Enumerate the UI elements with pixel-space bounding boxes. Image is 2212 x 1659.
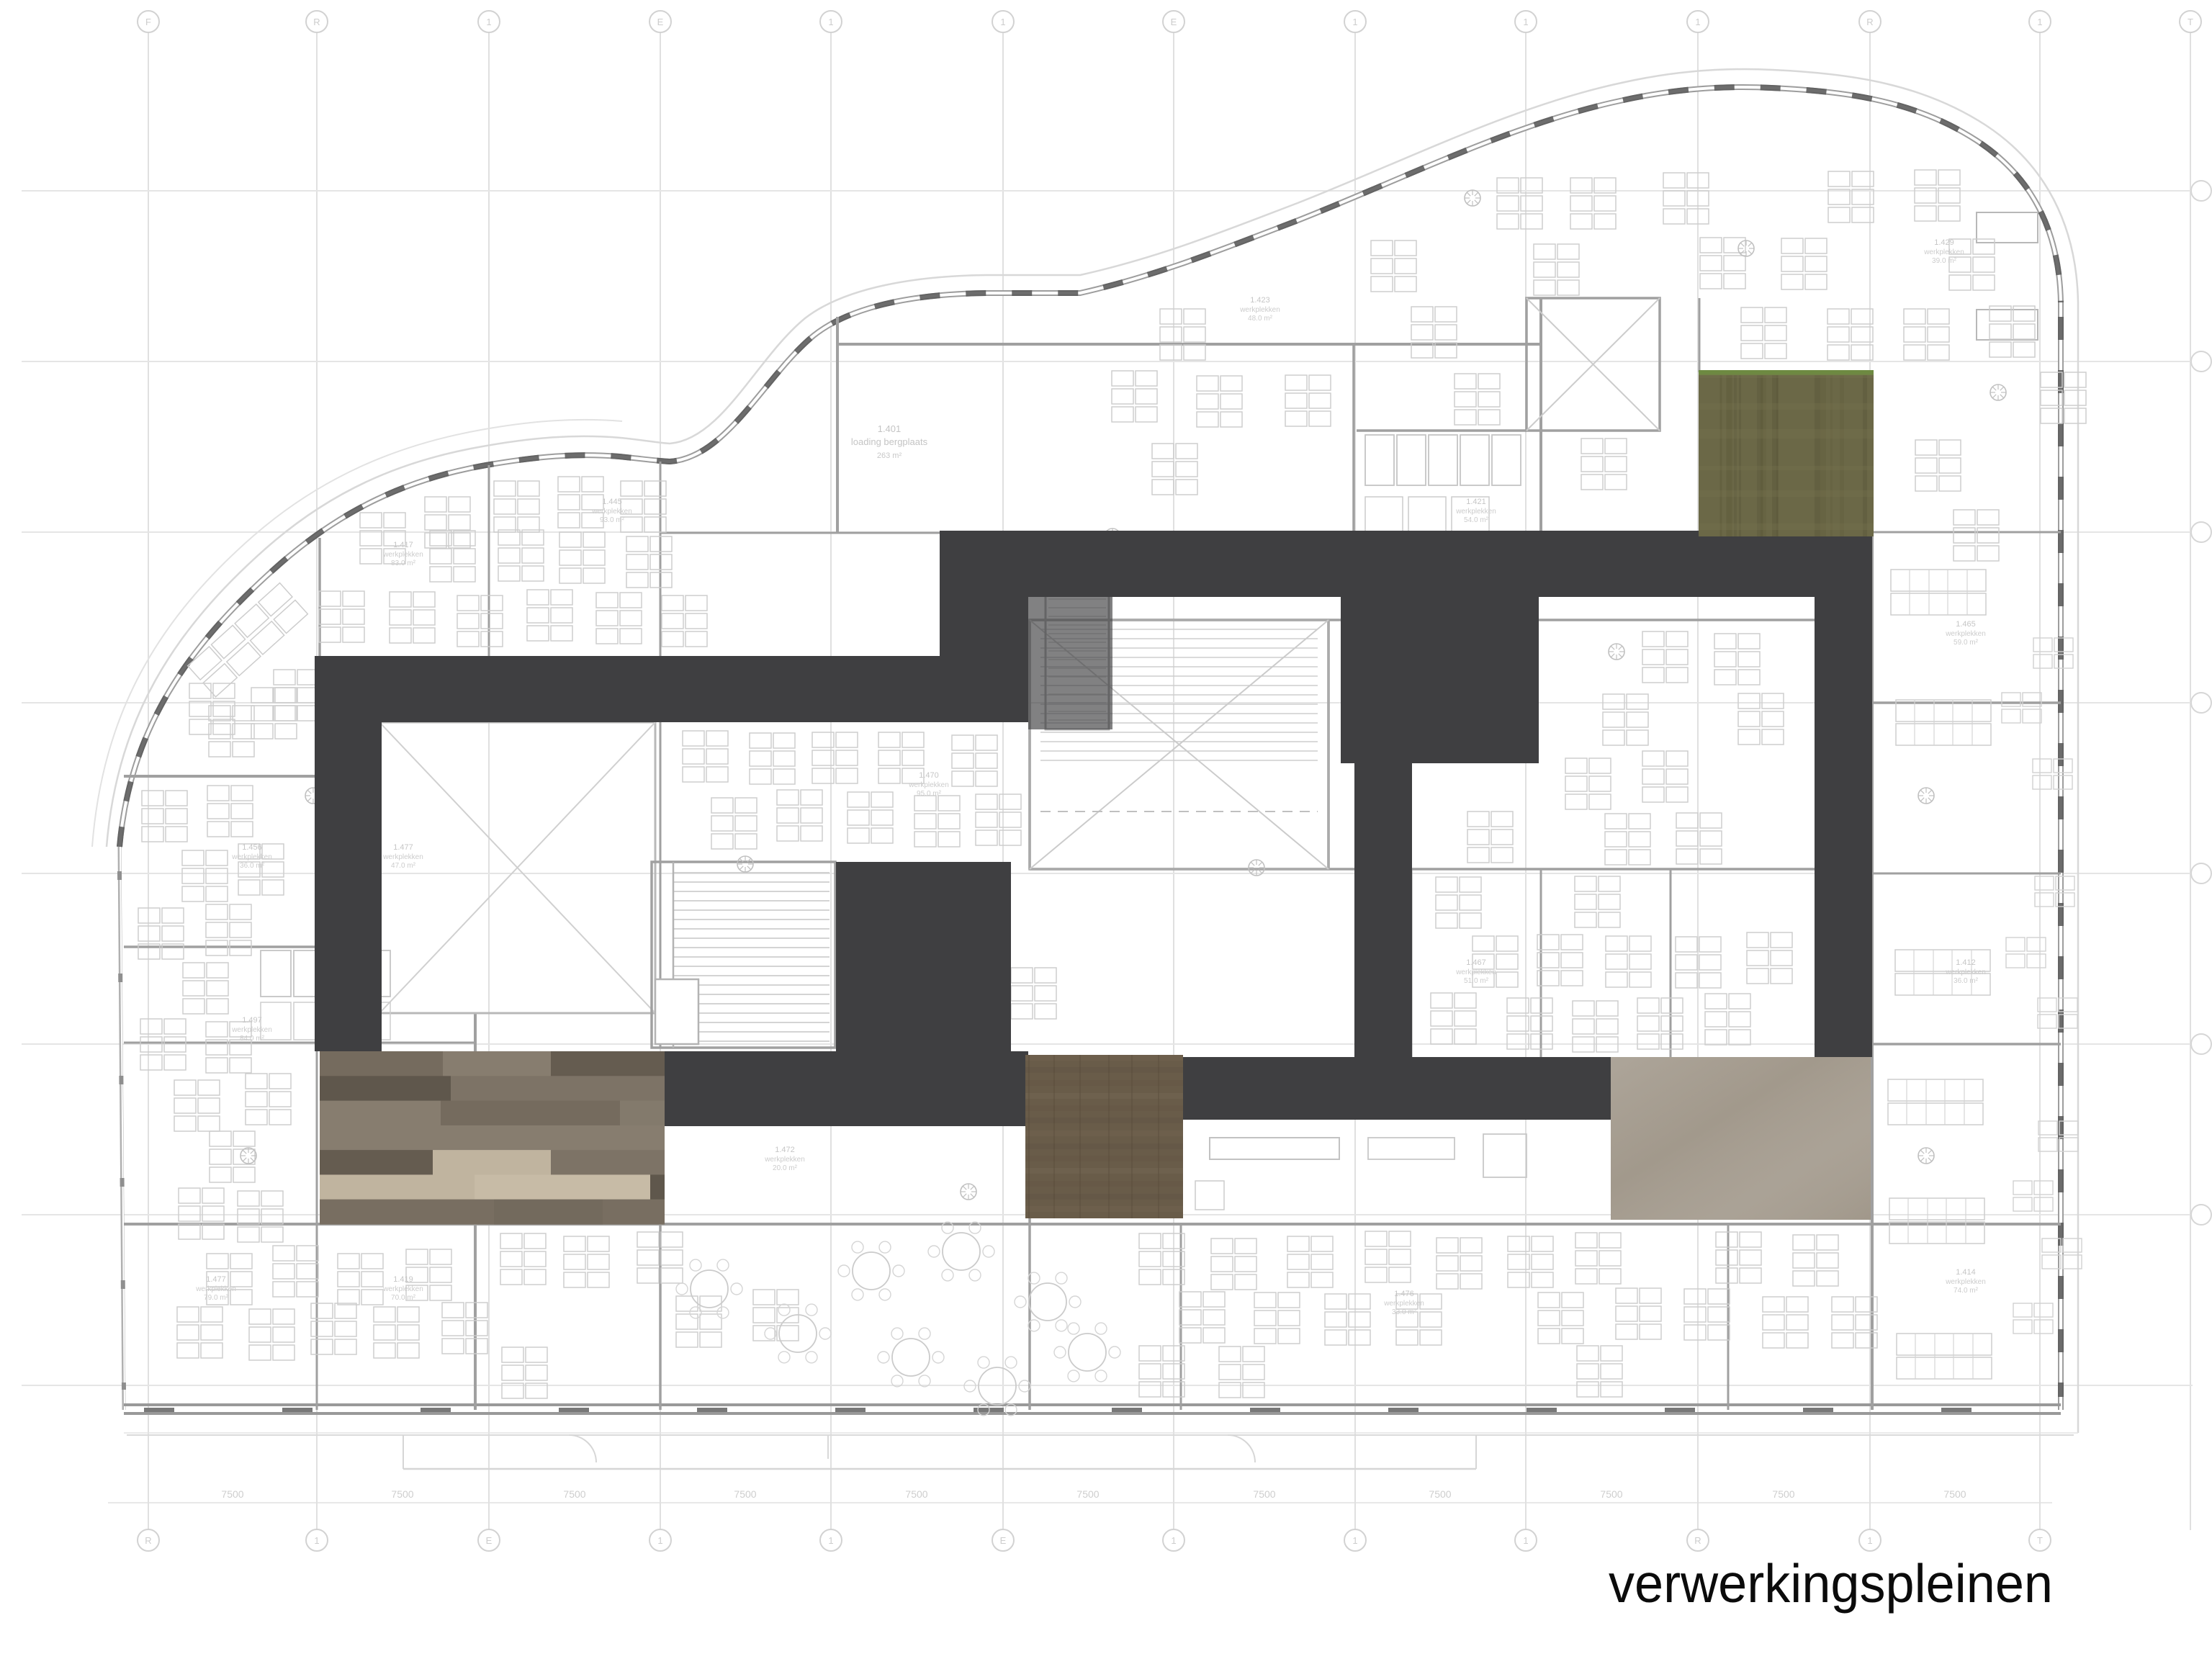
svg-text:1.467: 1.467 bbox=[1466, 958, 1486, 967]
svg-text:R: R bbox=[1866, 17, 1873, 27]
svg-text:54.0 m²: 54.0 m² bbox=[1464, 516, 1489, 524]
svg-text:werkplekken: werkplekken bbox=[764, 1156, 805, 1164]
svg-text:83.0 m²: 83.0 m² bbox=[391, 559, 416, 567]
svg-text:7500: 7500 bbox=[221, 1488, 243, 1500]
svg-text:1: 1 bbox=[1171, 1535, 1176, 1546]
svg-text:werkplekken: werkplekken bbox=[591, 508, 632, 516]
svg-text:R: R bbox=[313, 17, 320, 27]
svg-text:263 m²: 263 m² bbox=[877, 451, 902, 460]
svg-text:1: 1 bbox=[828, 17, 833, 27]
svg-text:74.0 m²: 74.0 m² bbox=[1954, 1287, 1979, 1295]
svg-text:7500: 7500 bbox=[563, 1488, 585, 1500]
svg-text:1: 1 bbox=[486, 17, 491, 27]
svg-text:7500: 7500 bbox=[1600, 1488, 1622, 1500]
svg-text:1: 1 bbox=[1523, 17, 1528, 27]
svg-text:werkplekken: werkplekken bbox=[231, 853, 272, 861]
svg-text:werkplekken: werkplekken bbox=[1455, 968, 1496, 976]
svg-text:33.0 m²: 33.0 m² bbox=[1392, 1308, 1417, 1316]
svg-text:E: E bbox=[1000, 1535, 1007, 1546]
svg-text:1.477: 1.477 bbox=[206, 1275, 226, 1284]
svg-text:51.0 m²: 51.0 m² bbox=[1464, 977, 1489, 985]
svg-text:R: R bbox=[145, 1535, 151, 1546]
svg-text:1.412: 1.412 bbox=[1956, 958, 1976, 967]
svg-text:1.429: 1.429 bbox=[1934, 238, 1954, 247]
svg-text:1: 1 bbox=[1000, 17, 1005, 27]
svg-text:werkplekken: werkplekken bbox=[1455, 508, 1496, 516]
svg-text:werkplekken: werkplekken bbox=[382, 1285, 423, 1293]
svg-text:1: 1 bbox=[1352, 1535, 1357, 1546]
svg-text:7500: 7500 bbox=[391, 1488, 413, 1500]
svg-text:1.456: 1.456 bbox=[242, 843, 262, 852]
svg-text:T: T bbox=[2037, 1535, 2043, 1546]
svg-text:20.0 m²: 20.0 m² bbox=[773, 1164, 798, 1172]
svg-text:1.472: 1.472 bbox=[775, 1146, 795, 1154]
svg-text:werkplekken: werkplekken bbox=[908, 781, 949, 789]
svg-text:werkplekken: werkplekken bbox=[1383, 1300, 1424, 1308]
svg-text:werkplekken: werkplekken bbox=[382, 551, 423, 559]
svg-text:1.423: 1.423 bbox=[1250, 296, 1270, 305]
svg-text:E: E bbox=[1171, 17, 1177, 27]
svg-text:1: 1 bbox=[1695, 17, 1700, 27]
svg-text:E: E bbox=[486, 1535, 493, 1546]
svg-text:werkplekken: werkplekken bbox=[1239, 306, 1280, 314]
svg-text:36.0 m²: 36.0 m² bbox=[1954, 977, 1979, 985]
svg-text:E: E bbox=[657, 17, 664, 27]
svg-text:95.0 m²: 95.0 m² bbox=[917, 790, 942, 798]
svg-text:1.497: 1.497 bbox=[242, 1016, 262, 1025]
svg-text:1: 1 bbox=[828, 1535, 833, 1546]
svg-text:1: 1 bbox=[1867, 1535, 1872, 1546]
svg-text:R: R bbox=[1694, 1535, 1701, 1546]
svg-text:werkplekken: werkplekken bbox=[195, 1285, 236, 1293]
svg-text:7500: 7500 bbox=[1429, 1488, 1451, 1500]
svg-text:loading bergplaats: loading bergplaats bbox=[851, 436, 928, 447]
svg-text:1: 1 bbox=[657, 1535, 662, 1546]
svg-text:1: 1 bbox=[2037, 17, 2042, 27]
svg-text:1: 1 bbox=[1352, 17, 1357, 27]
svg-text:1.476: 1.476 bbox=[1394, 1290, 1414, 1298]
svg-text:1.421: 1.421 bbox=[1466, 498, 1486, 506]
svg-text:84.0 m²: 84.0 m² bbox=[240, 1035, 265, 1043]
svg-text:F: F bbox=[145, 17, 151, 27]
svg-text:7500: 7500 bbox=[1943, 1488, 1966, 1500]
svg-text:7500: 7500 bbox=[905, 1488, 927, 1500]
svg-text:7500: 7500 bbox=[1253, 1488, 1275, 1500]
svg-text:1.465: 1.465 bbox=[1956, 620, 1976, 629]
svg-text:36.0 m²: 36.0 m² bbox=[240, 862, 265, 870]
svg-text:1.401: 1.401 bbox=[878, 423, 902, 434]
svg-text:1.445: 1.445 bbox=[602, 498, 622, 506]
svg-text:47.0 m²: 47.0 m² bbox=[391, 862, 416, 870]
svg-text:1.414: 1.414 bbox=[1956, 1268, 1976, 1277]
svg-text:7500: 7500 bbox=[1772, 1488, 1794, 1500]
svg-text:7500: 7500 bbox=[1076, 1488, 1099, 1500]
svg-text:1.419: 1.419 bbox=[393, 1275, 413, 1284]
svg-text:1.477: 1.477 bbox=[393, 843, 413, 852]
svg-text:59.0 m²: 59.0 m² bbox=[1954, 639, 1979, 647]
svg-text:39.0 m²: 39.0 m² bbox=[1932, 257, 1957, 265]
svg-text:70.0 m²: 70.0 m² bbox=[391, 1294, 416, 1302]
svg-text:1: 1 bbox=[1523, 1535, 1528, 1546]
svg-text:werkplekken: werkplekken bbox=[231, 1026, 272, 1034]
svg-text:1: 1 bbox=[314, 1535, 319, 1546]
svg-text:werkplekken: werkplekken bbox=[1945, 968, 1986, 976]
svg-text:werkplekken: werkplekken bbox=[1945, 630, 1986, 638]
svg-text:1.417: 1.417 bbox=[393, 541, 413, 549]
svg-text:T: T bbox=[2188, 17, 2193, 27]
svg-text:verwerkingspleinen: verwerkingspleinen bbox=[1609, 1553, 2053, 1614]
svg-text:1.470: 1.470 bbox=[919, 771, 939, 780]
svg-text:79.0 m²: 79.0 m² bbox=[204, 1294, 229, 1302]
svg-text:werkplekken: werkplekken bbox=[1923, 248, 1964, 256]
svg-text:werkplekken: werkplekken bbox=[382, 853, 423, 861]
svg-text:48.0 m²: 48.0 m² bbox=[1248, 315, 1273, 323]
svg-text:werkplekken: werkplekken bbox=[1945, 1278, 1986, 1286]
svg-text:7500: 7500 bbox=[734, 1488, 756, 1500]
svg-text:93.0 m²: 93.0 m² bbox=[600, 516, 625, 524]
